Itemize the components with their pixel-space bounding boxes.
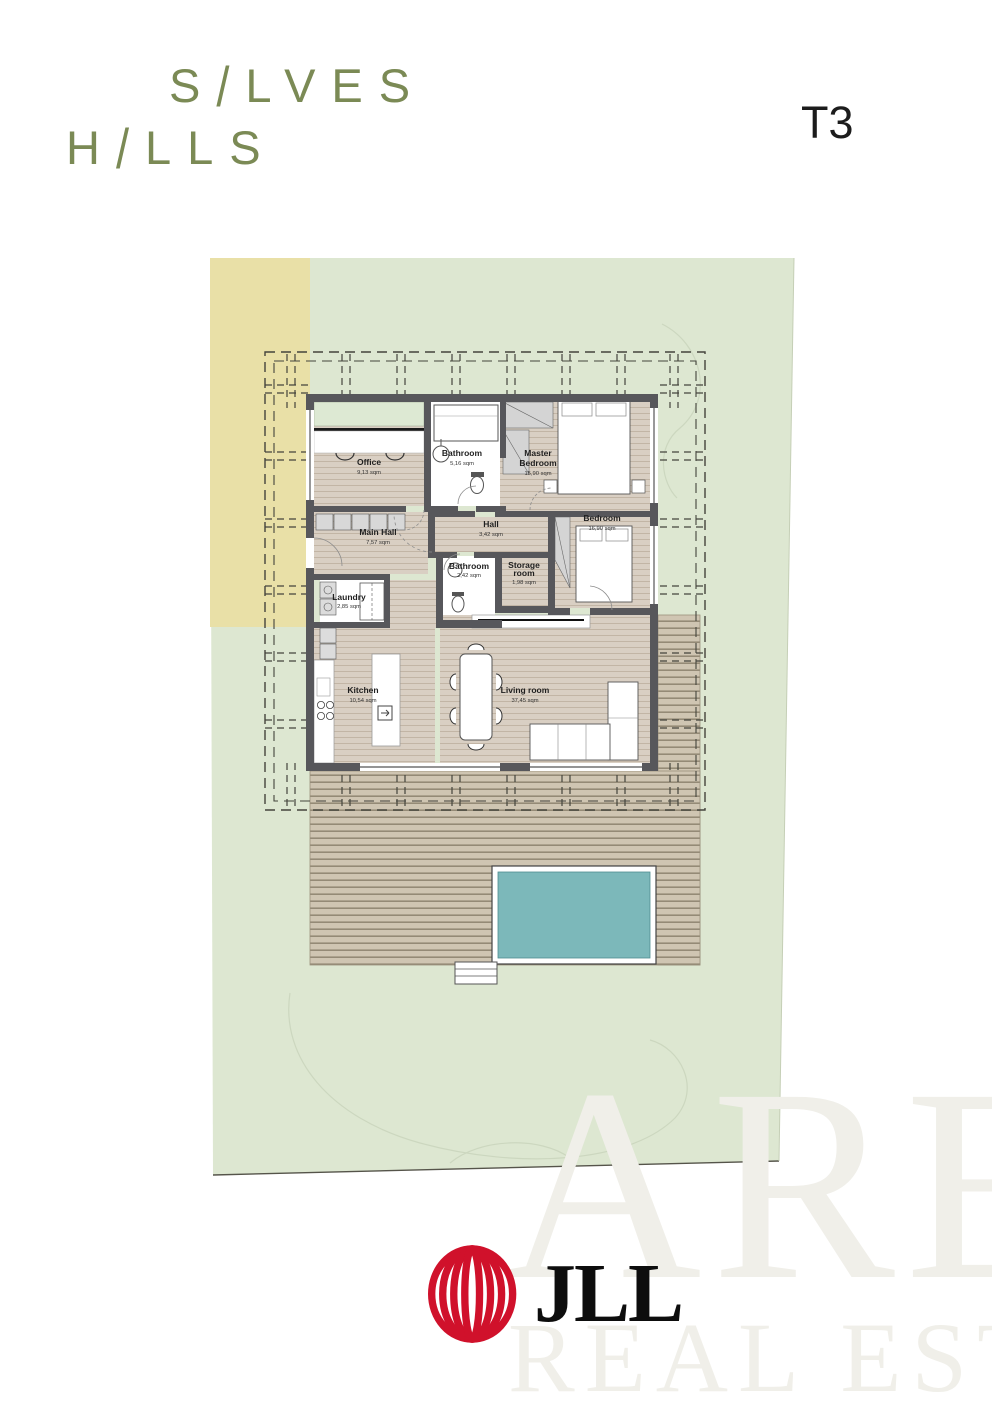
room-label-master-bedroom-1: Master (524, 448, 552, 458)
room-area-laundry: 2,85 sqm (337, 604, 361, 610)
room-label-laundry: Laundry (332, 592, 366, 602)
jll-globe-icon (428, 1243, 520, 1345)
office-desk (314, 431, 424, 453)
office-window-band (314, 402, 424, 426)
jll-wordmark: JLL (534, 1252, 682, 1336)
dining-table (460, 654, 492, 740)
room-label-office: Office (357, 457, 381, 467)
corridor-floor (390, 580, 436, 628)
kitchen-sink (317, 678, 330, 696)
room-label-living-room: Living room (501, 685, 550, 695)
brand-l2-pre: H (66, 121, 116, 174)
brand-l2-post: LLS (145, 121, 277, 174)
room-label-bathroom: Bathroom (442, 448, 483, 458)
pillow (562, 403, 592, 416)
brand-l1-post: LVES (245, 59, 426, 112)
brochure-page: S/LVES H/LLS T3 (0, 0, 992, 1403)
room-label-hall: Hall (483, 519, 499, 529)
brand-l1-pre: S (169, 59, 216, 112)
room-area-master-bedroom: 15,90 sqm (524, 471, 551, 477)
toilet (471, 477, 484, 494)
brand-slash-icon: / (216, 59, 245, 114)
sofa-chaise (608, 682, 638, 760)
room-area-storage: 1,98 sqm (512, 580, 536, 586)
floor-plan-drawing: Office 9,13 sqm Bathroom 5,16 sqm Master… (210, 258, 795, 1178)
room-area-office: 9,13 sqm (357, 470, 381, 476)
kitchen-counter (314, 660, 334, 763)
unit-type-label: T3 (801, 100, 854, 145)
room-area-hall: 3,42 sqm (479, 532, 503, 538)
toilet-2-tank (452, 592, 464, 596)
sofa (530, 724, 610, 760)
room-label-storage-2: room (513, 568, 535, 578)
room-area-living-room: 37,45 sqm (511, 698, 538, 704)
nightstand (632, 480, 645, 493)
toilet-2 (452, 596, 464, 612)
room-area-kitchen: 10,54 sqm (349, 698, 376, 704)
room-area-bedroom: 16,90 sqm (588, 526, 615, 532)
room-label-main-hall: Main Hall (359, 527, 396, 537)
room-area-bathroom: 5,16 sqm (450, 461, 474, 467)
sand-area (210, 258, 310, 627)
room-area-bathroom-2: 2,42 sqm (457, 573, 481, 579)
pillow (596, 403, 626, 416)
room-label-master-bedroom-2: Bedroom (519, 458, 557, 468)
site-plan: Office 9,13 sqm Bathroom 5,16 sqm Master… (210, 258, 795, 1178)
brand-slash-icon: / (116, 121, 145, 176)
brand-line-2: H/LLS (66, 124, 277, 171)
desk-edge (314, 428, 424, 431)
nightstand (544, 480, 557, 493)
shower (434, 405, 498, 441)
room-area-main-hall: 7,57 sqm (366, 540, 390, 546)
jll-logo: JLL (428, 1243, 682, 1345)
pool (498, 872, 650, 958)
pool-steps (455, 962, 497, 984)
brand-line-1: S/LVES (169, 62, 426, 109)
room-label-kitchen: Kitchen (347, 685, 378, 695)
room-label-bedroom: Bedroom (583, 513, 621, 523)
room-label-bathroom-2: Bathroom (449, 561, 490, 571)
